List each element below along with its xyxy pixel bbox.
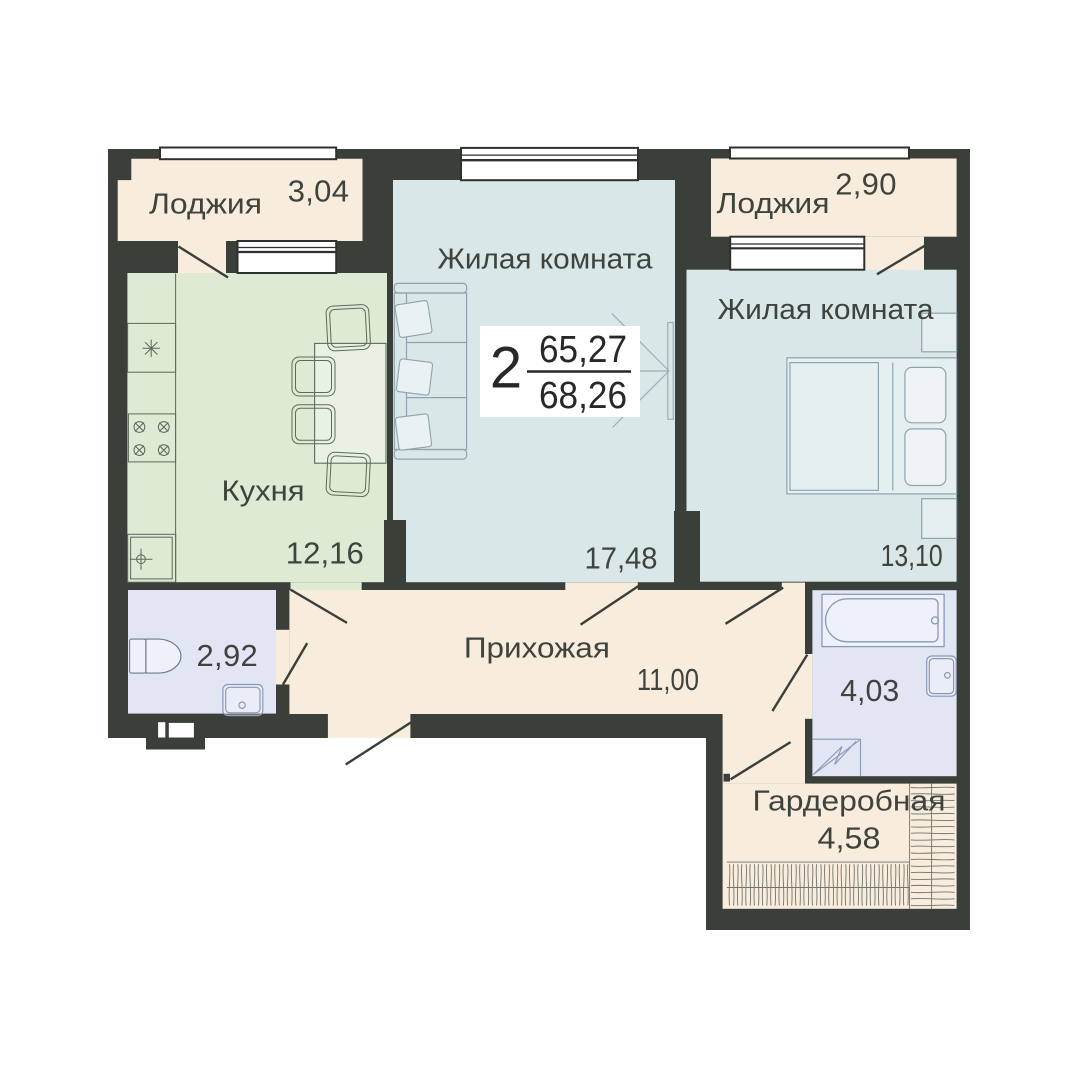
svg-text:Жилая комната: Жилая комната [718,294,935,326]
svg-text:Лоджия: Лоджия [149,189,262,221]
svg-text:Жилая комната: Жилая комната [437,243,653,275]
svg-text:12,16: 12,16 [286,536,364,571]
svg-text:4,03: 4,03 [840,673,899,708]
svg-text:Лоджия: Лоджия [717,188,830,220]
svg-text:2,90: 2,90 [835,167,897,202]
svg-text:17,48: 17,48 [585,540,658,575]
svg-text:65,27: 65,27 [539,329,627,371]
svg-text:4,58: 4,58 [818,821,881,856]
svg-text:Прихожая: Прихожая [464,633,610,665]
svg-text:11,00: 11,00 [637,662,699,697]
svg-text:68,26: 68,26 [539,375,627,417]
svg-text:2,92: 2,92 [197,638,259,673]
svg-text:13,10: 13,10 [881,538,943,573]
svg-text:Кухня: Кухня [222,475,305,507]
svg-text:Гардеробная: Гардеробная [753,785,946,817]
svg-text:3,04: 3,04 [288,173,350,208]
svg-text:2: 2 [490,336,522,401]
